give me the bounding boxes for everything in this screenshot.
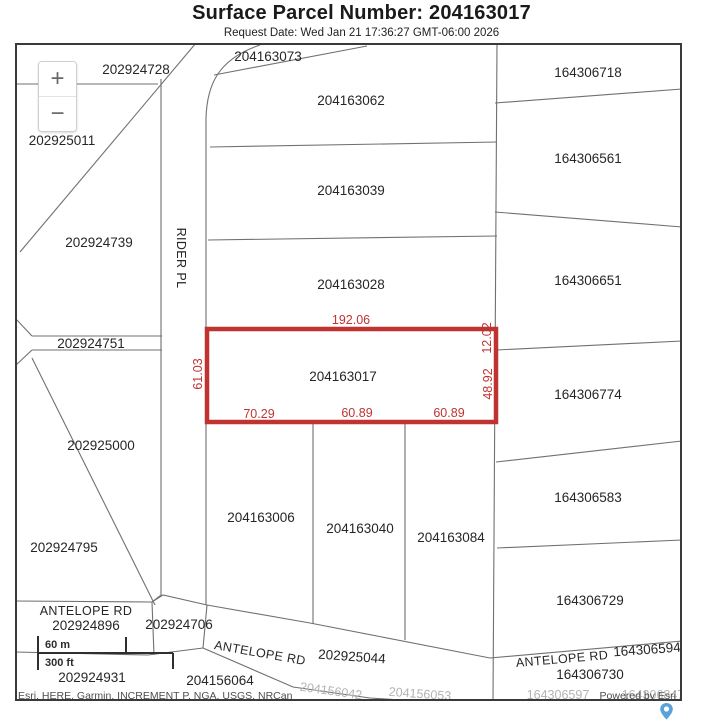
highlighted-parcel-label: 204163017 bbox=[309, 369, 377, 384]
parcel-label: 164306583 bbox=[554, 490, 622, 505]
zoom-out-button[interactable]: − bbox=[39, 96, 76, 131]
parcel-label: 164306774 bbox=[554, 387, 622, 402]
parcel-label: 202925044 bbox=[318, 647, 387, 667]
parcel-label: 202924706 bbox=[145, 617, 213, 632]
zoom-in-button[interactable]: + bbox=[39, 62, 76, 96]
parcel-label: 204163028 bbox=[317, 277, 385, 292]
parcel-label: 202924795 bbox=[30, 540, 98, 555]
parcel-labels-middle: 204163073 204163062 204163039 204163028 … bbox=[227, 49, 485, 545]
parcel-labels-right: 164306718 164306561 164306651 164306774 … bbox=[554, 65, 681, 682]
parcel-label: 202924931 bbox=[58, 670, 126, 685]
parcel-label: 202924896 bbox=[52, 618, 120, 633]
parcel-label: 202924739 bbox=[65, 235, 133, 250]
parcel-map[interactable]: 202924728 202925011 202924739 202924751 … bbox=[15, 43, 682, 701]
dimension-label-right-lower: 48.92 bbox=[481, 368, 495, 399]
scale-metric: 60 m bbox=[45, 639, 70, 651]
road-label-rider-pl: RIDER PL bbox=[174, 228, 188, 289]
map-canvas: 202924728 202925011 202924739 202924751 … bbox=[15, 43, 682, 701]
request-date: Request Date: Wed Jan 21 17:36:27 GMT-06… bbox=[0, 27, 723, 39]
parcel-label: 204163062 bbox=[317, 93, 385, 108]
dimension-label-bottom: 70.29 bbox=[243, 407, 274, 421]
parcel-label: 202924751 bbox=[57, 336, 125, 351]
parcel-label: 204156064 bbox=[186, 673, 254, 688]
parcel-label: 204163006 bbox=[227, 510, 295, 525]
dimension-label-bottom: 60.89 bbox=[341, 406, 372, 420]
parcel-labels-left: 202924728 202925011 202924739 202924751 … bbox=[29, 62, 213, 685]
parcel-label: 164306729 bbox=[556, 593, 624, 608]
basemap-label: 204156042 bbox=[299, 680, 363, 701]
dimension-label-bottom: 60.89 bbox=[433, 406, 464, 420]
parcel-label: 164306561 bbox=[554, 151, 622, 166]
page-title: Surface Parcel Number: 204163017 bbox=[0, 2, 723, 25]
parcel-label: 202924728 bbox=[102, 62, 170, 77]
parcel-label: 204163084 bbox=[417, 530, 485, 545]
location-pin-icon bbox=[659, 702, 674, 720]
road-label-antelope-center: ANTELOPE RD bbox=[213, 638, 307, 668]
parcel-report-page: Surface Parcel Number: 204163017 Request… bbox=[0, 0, 723, 720]
parcel-label: 204163040 bbox=[326, 521, 394, 536]
dimension-label-right-upper: 12.02 bbox=[480, 322, 494, 353]
parcel-label: 164306718 bbox=[554, 65, 622, 80]
road-label-antelope-west: ANTELOPE RD bbox=[40, 604, 133, 618]
basemap-label: 204156053 bbox=[388, 685, 451, 701]
parcel-label: 164306594 bbox=[613, 640, 682, 660]
zoom-controls: + − bbox=[38, 61, 77, 132]
dimension-label-top: 192.06 bbox=[332, 313, 370, 327]
parcel-label: 164306730 bbox=[556, 667, 624, 682]
parcel-label: 164306651 bbox=[554, 273, 622, 288]
parcel-label: 202925000 bbox=[67, 438, 135, 453]
parcel-label: 204163073 bbox=[234, 49, 302, 64]
scale-imperial: 300 ft bbox=[45, 657, 74, 669]
parcel-label: 202925011 bbox=[29, 133, 96, 148]
scale-bar: 60 m 300 ft bbox=[38, 636, 173, 670]
parcel-label: 204163039 bbox=[317, 183, 385, 198]
dimension-label-left: 61.03 bbox=[191, 358, 205, 389]
